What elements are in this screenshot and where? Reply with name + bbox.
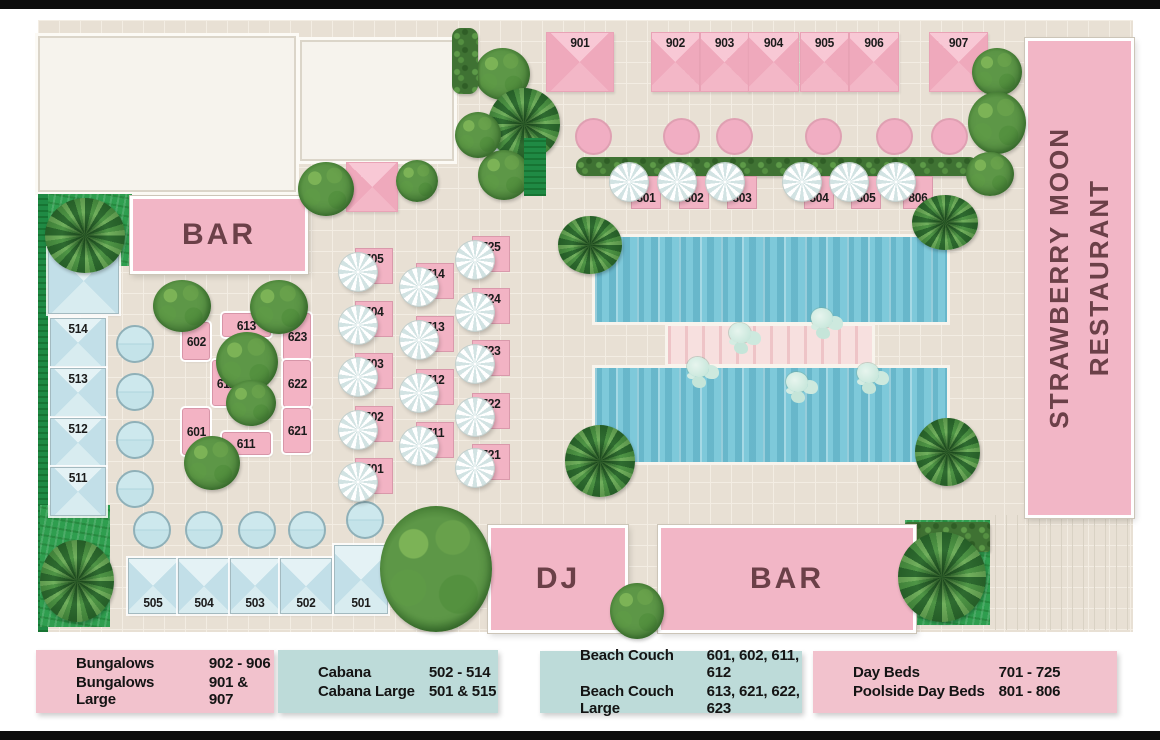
dj-booth-area: DJ: [488, 525, 628, 633]
umbrella-icon: [877, 163, 915, 201]
cabana-505-label: 505: [131, 595, 175, 610]
bungalow-904-label: 904: [751, 35, 796, 50]
legend-value: 502 - 514: [429, 664, 496, 681]
cabana-503-label: 503: [233, 595, 277, 610]
round-table-blue: [116, 325, 154, 363]
palm-tree: [898, 532, 986, 622]
legend-label: Poolside Day Beds: [853, 683, 985, 700]
top-border-bar: [0, 0, 1160, 9]
bungalow-906-label: 906: [852, 35, 896, 50]
legend-value: 901 & 907: [209, 674, 274, 708]
umbrella-icon: [456, 398, 494, 436]
cabana-501-label: 501: [337, 595, 385, 610]
legend-bungalows-rows: Bungalows902 - 906 Bungalows Large901 & …: [76, 655, 274, 708]
tree: [184, 436, 240, 490]
cabana-513-label: 513: [53, 371, 103, 386]
legend-label: Cabana: [318, 664, 415, 681]
beach-couch-621: 621: [283, 408, 311, 453]
round-table-pink: [663, 118, 700, 155]
legend-value: 501 & 515: [429, 683, 496, 700]
dj-label: DJ: [536, 562, 580, 596]
pool-lower: [595, 368, 947, 462]
legend-label: Bungalows Large: [76, 674, 195, 708]
palm-tree: [558, 216, 622, 274]
pool-deck-map: BAR 901 902 903 904 905 906 907 801 802 …: [0, 0, 1160, 740]
cabana-502-label: 502: [283, 595, 329, 610]
legend-label: Beach Couch Large: [580, 683, 693, 717]
legend-beach-couches-rows: Beach Couch601, 602, 611, 612 Beach Couc…: [580, 647, 802, 717]
cabana-514: 514: [50, 318, 106, 367]
building-block-right: [300, 40, 454, 161]
tree-large: [380, 506, 492, 632]
couch-611-label: 611: [237, 436, 255, 451]
palm-tree: [565, 425, 635, 497]
cabana-505: 505: [128, 558, 178, 614]
cabana-512: 512: [50, 418, 106, 467]
umbrella-icon: [456, 293, 494, 331]
round-table-pink: [931, 118, 968, 155]
cabana-504-label: 504: [181, 595, 227, 610]
legend-day-beds-rows: Day Beds701 - 725 Poolside Day Beds801 -…: [853, 664, 1060, 700]
umbrella-icon: [339, 358, 377, 396]
pool-float: [786, 372, 808, 392]
umbrella-icon: [339, 411, 377, 449]
round-table-blue: [116, 470, 154, 508]
round-table-blue: [346, 501, 384, 539]
legend-label: Cabana Large: [318, 683, 415, 700]
round-table-blue: [116, 421, 154, 459]
pool-float: [857, 363, 879, 383]
umbrella-icon: [456, 449, 494, 487]
legend-value: 701 - 725: [999, 664, 1061, 681]
tree: [250, 280, 308, 334]
umbrella-icon: [783, 163, 821, 201]
legend-value: 902 - 906: [209, 655, 274, 672]
legend-beach-couches: Beach Couch601, 602, 611, 612 Beach Couc…: [540, 651, 802, 713]
cabana-502: 502: [280, 558, 332, 614]
legend-value: 613, 621, 622, 623: [707, 683, 802, 717]
umbrella-icon: [339, 253, 377, 291]
round-table-pink: [716, 118, 753, 155]
umbrella-icon: [610, 163, 648, 201]
bungalow-902: 902: [651, 32, 700, 92]
cabana-511: 511: [50, 467, 106, 516]
cabana-512-label: 512: [53, 421, 103, 436]
tree: [396, 160, 438, 202]
bar-bottom-label: BAR: [750, 562, 824, 596]
umbrella-icon: [456, 241, 494, 279]
tree: [968, 92, 1026, 154]
bar-bottom-area: BAR: [658, 525, 916, 633]
tree: [153, 280, 211, 332]
bungalow-905: 905: [800, 32, 849, 92]
legend-label: Day Beds: [853, 664, 985, 681]
round-table-blue: [288, 511, 326, 549]
grass-patch-small: [524, 138, 546, 196]
legend-day-beds: Day Beds701 - 725 Poolside Day Beds801 -…: [813, 651, 1117, 713]
tree: [298, 162, 354, 216]
umbrella-icon: [830, 163, 868, 201]
couch-621-label: 621: [287, 423, 306, 438]
hedge-vertical: [452, 28, 478, 94]
palm-tree: [40, 540, 114, 622]
cabana-514-label: 514: [53, 321, 103, 336]
palm-tree: [45, 198, 125, 273]
couch-622-label: 622: [287, 376, 306, 391]
cabana-503: 503: [230, 558, 280, 614]
umbrella-icon: [658, 163, 696, 201]
bungalow-902-label: 902: [654, 35, 697, 50]
bar-top-area: BAR: [130, 196, 308, 274]
umbrella-icon: [400, 427, 438, 465]
bottom-border-bar: [0, 731, 1160, 740]
palm-tree: [915, 418, 980, 486]
cabana-513: 513: [50, 368, 106, 417]
bungalow-907-label: 907: [932, 35, 984, 50]
strawberry-moon-restaurant-area: STRAWBERRY MOON RESTAURANT: [1025, 38, 1134, 518]
couch-602-label: 602: [186, 334, 205, 349]
bungalow-903: 903: [700, 32, 749, 92]
tree: [226, 380, 276, 426]
round-table-blue: [185, 511, 223, 549]
legend-label: Bungalows: [76, 655, 195, 672]
bungalow-903-label: 903: [703, 35, 746, 50]
restaurant-name-line1: STRAWBERRY MOON: [1042, 127, 1077, 429]
round-table-blue: [116, 373, 154, 411]
cabana-504: 504: [178, 558, 230, 614]
umbrella-icon: [400, 268, 438, 306]
umbrella-icon: [339, 463, 377, 501]
bungalow-906: 906: [849, 32, 899, 92]
tree: [478, 150, 530, 200]
beach-couch-622: 622: [283, 360, 311, 407]
pool-float: [729, 323, 751, 343]
legend-bungalows: Bungalows902 - 906 Bungalows Large901 & …: [36, 650, 274, 713]
tree: [966, 152, 1014, 196]
tree: [972, 48, 1022, 96]
bar-top-label: BAR: [182, 218, 256, 252]
bungalow-901: 901: [546, 32, 614, 92]
bungalow-901-label: 901: [550, 35, 611, 50]
palm-tree: [912, 195, 978, 250]
pool-float: [687, 357, 709, 377]
legend-value: 601, 602, 611, 612: [707, 647, 802, 681]
pool-float: [811, 308, 833, 328]
round-table-blue: [133, 511, 171, 549]
restaurant-name-line2: RESTAURANT: [1082, 179, 1117, 376]
pavement-stripes: [995, 515, 1133, 630]
umbrella-icon: [400, 374, 438, 412]
pool-upper: [595, 237, 947, 322]
umbrella-icon: [706, 163, 744, 201]
tree: [455, 112, 501, 158]
round-table-blue: [238, 511, 276, 549]
legend-label: Beach Couch: [580, 647, 693, 681]
cabana-511-label: 511: [53, 470, 103, 485]
umbrella-icon: [456, 345, 494, 383]
legend-value: 801 - 806: [999, 683, 1061, 700]
round-table-pink: [575, 118, 612, 155]
building-block-left: [38, 36, 296, 192]
umbrella-icon: [400, 321, 438, 359]
round-table-pink: [805, 118, 842, 155]
bungalow-905-label: 905: [803, 35, 846, 50]
round-table-pink: [876, 118, 913, 155]
tree: [610, 583, 664, 639]
legend-cabanas: Cabana502 - 514 Cabana Large501 & 515: [278, 650, 498, 713]
umbrella-icon: [339, 306, 377, 344]
bungalow-904: 904: [748, 32, 799, 92]
legend-cabanas-rows: Cabana502 - 514 Cabana Large501 & 515: [318, 664, 496, 700]
